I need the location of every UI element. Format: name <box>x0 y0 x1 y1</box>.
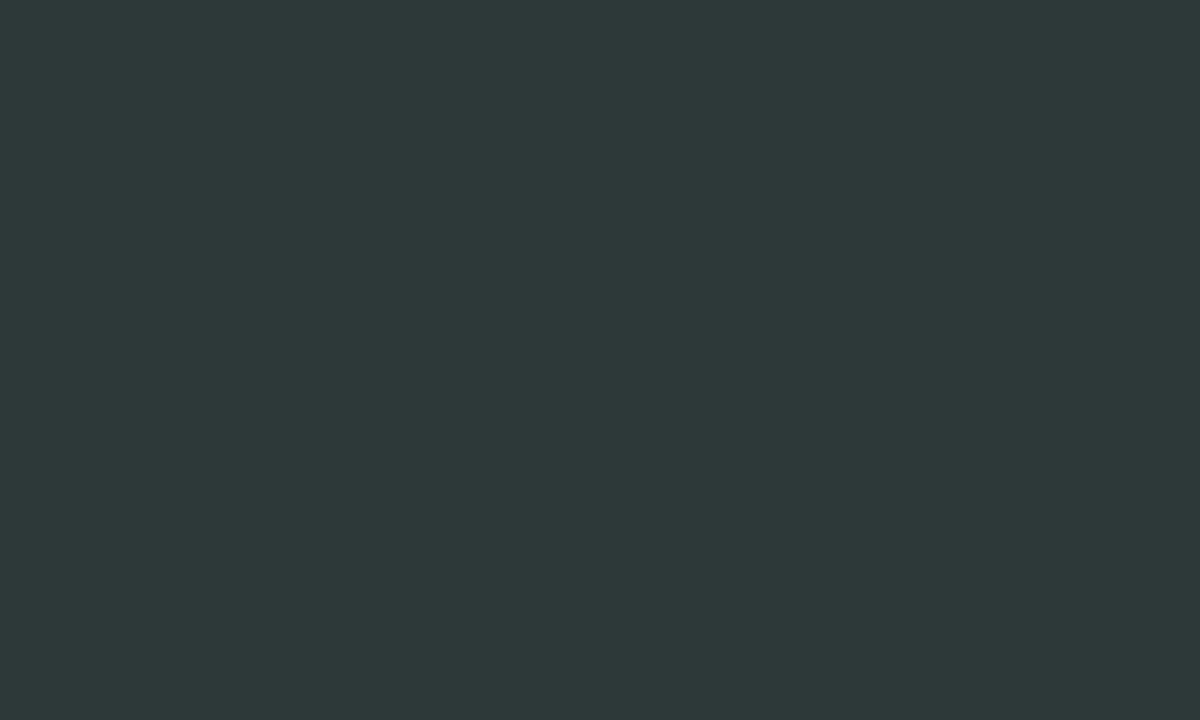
marker-layer <box>0 0 1200 720</box>
map-viewport[interactable] <box>0 0 1200 720</box>
